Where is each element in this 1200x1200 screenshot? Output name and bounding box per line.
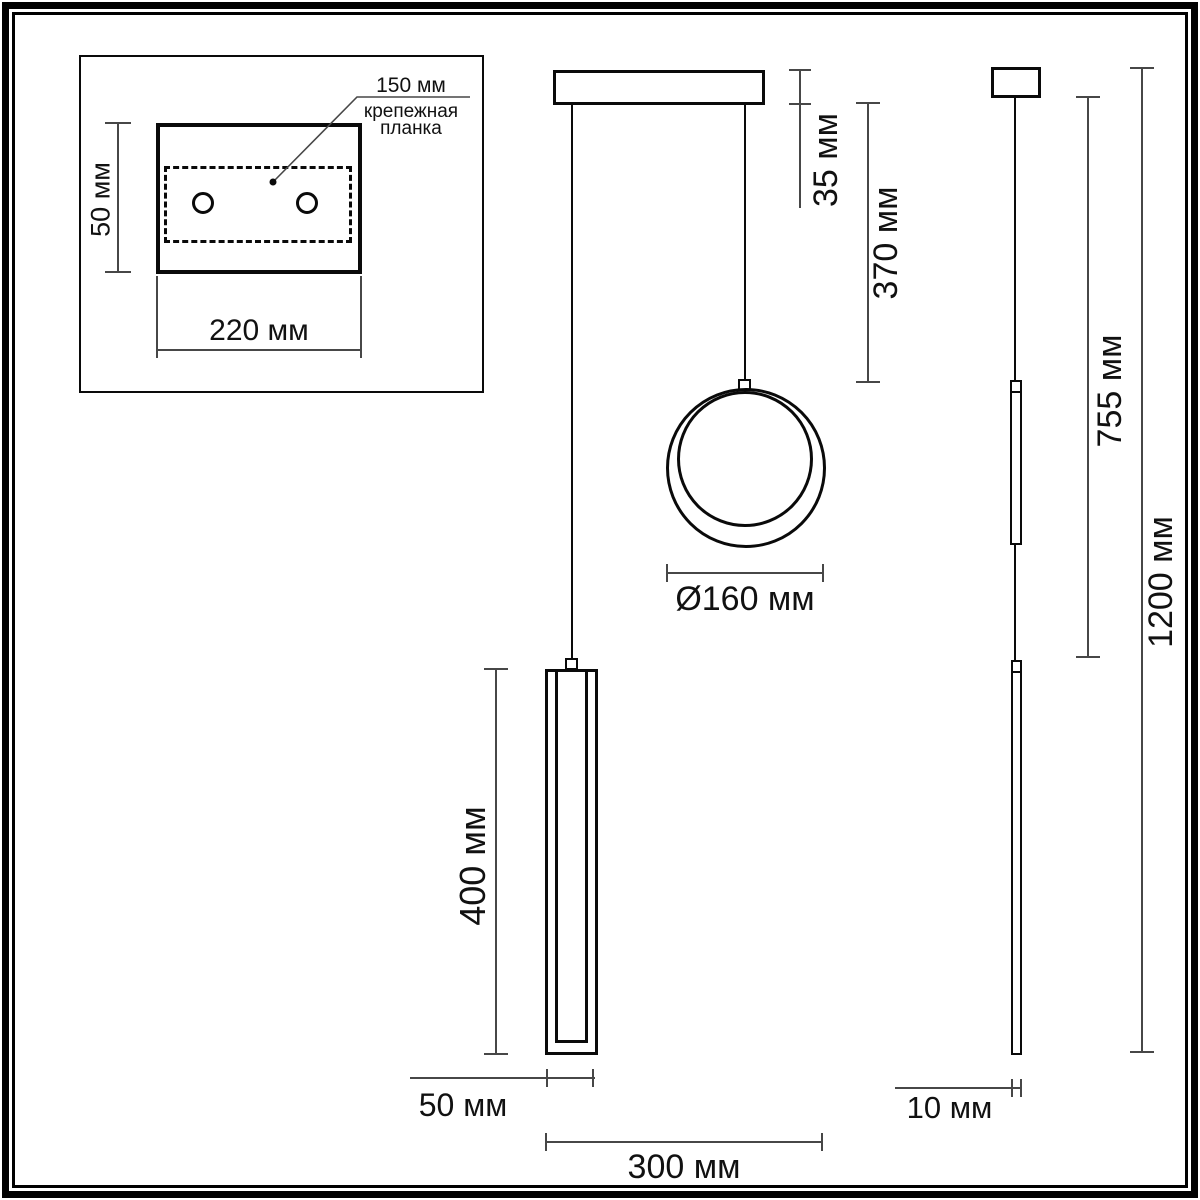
total-width-label: 300 мм [584,1150,784,1184]
bar-side-cap-line [1013,671,1020,673]
canopy-front [553,70,765,105]
drop-tick-top [1076,96,1100,98]
hole-spacing-label: 150 мм [352,75,470,96]
mounting-hole-left [192,192,214,214]
drop-tick-bottom [1076,656,1100,658]
bar-width-label: 50 мм [408,1089,518,1121]
ring-inner-circle [677,391,813,527]
canopy-height-dim-line [799,70,801,208]
inset-width-dim-line [156,349,362,351]
bar-width-tick-left [546,1069,548,1087]
side-cord-lower [1014,544,1016,661]
bar-length-dim-line [495,669,497,1055]
inset-width-ext-right [360,276,362,358]
bar-depth-dim-line [895,1087,1021,1089]
cord-length-tick-bottom [856,381,880,383]
mounting-hole-right [296,192,318,214]
cord-length-label: 370 мм [869,183,903,303]
inset-width-ext-left [156,276,158,358]
ring-diameter-tick-right [822,564,824,582]
canopy-height-label: 35 мм [809,105,843,215]
mounting-plate-label-line2: планка [380,118,442,139]
drop-dim-line [1087,97,1089,658]
bar-depth-tick-left [1011,1079,1013,1097]
total-width-tick-left [545,1133,547,1151]
cord-right [744,104,746,382]
bar-front-inner [555,672,588,1043]
ring-diameter-dim-line [667,572,824,574]
bar-length-tick-top [484,668,508,670]
bar-width-tick-right [592,1069,594,1087]
ring-side-profile [1010,380,1022,545]
mounting-plate-label: крепежная планка [348,103,474,137]
total-height-tick-bottom [1130,1051,1154,1053]
inset-height-label: 50 мм [88,154,115,246]
drop-label: 755 мм [1093,326,1127,456]
bar-width-dim-line [410,1077,595,1079]
total-height-tick-top [1130,67,1154,69]
bar-depth-tick-right [1020,1079,1022,1097]
total-width-tick-right [821,1133,823,1151]
total-width-dim-line [546,1141,823,1143]
inset-height-dim-line [117,123,119,273]
side-cord-upper [1014,97,1016,381]
bar-length-label: 400 мм [455,801,491,931]
canopy-height-tick-top [789,69,811,71]
ring-side-cap-line [1012,391,1020,393]
ring-diameter-tick-left [666,564,668,582]
bar-side-profile [1011,660,1022,1055]
bar-depth-label: 10 мм [892,1092,1007,1123]
bar-length-tick-bottom [484,1053,508,1055]
cord-left [571,104,573,660]
inset-width-label: 220 мм [184,316,334,346]
canopy-side [991,67,1041,98]
cord-length-tick-top [856,102,880,104]
inset-height-dim-tick-top [105,122,131,124]
inset-height-dim-tick-bottom [105,271,131,273]
total-height-label: 1200 мм [1144,502,1178,662]
ring-diameter-label: Ø160 мм [645,582,845,616]
canopy-height-tick-bottom [789,103,811,105]
